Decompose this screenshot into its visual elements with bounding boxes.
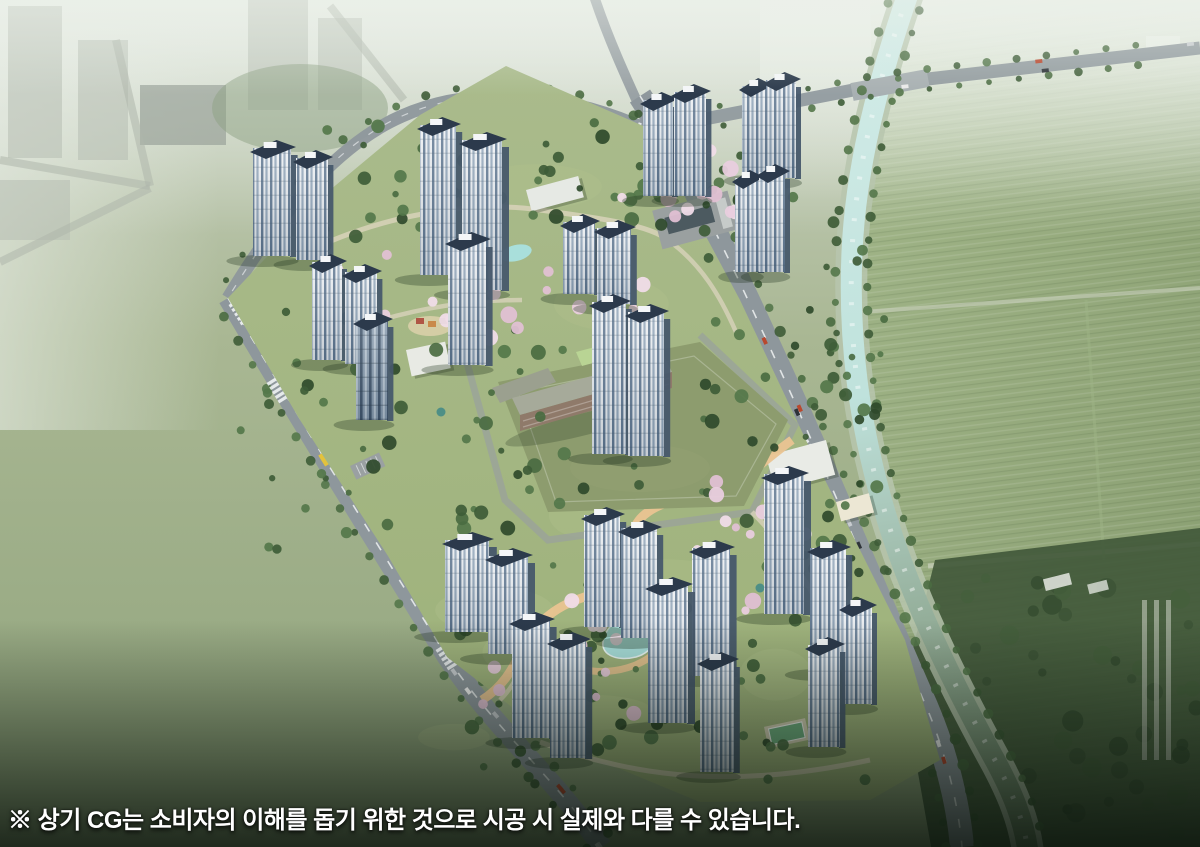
- rooftop-structure: [320, 256, 330, 262]
- cherry-blossom-tree: [382, 250, 392, 260]
- rooftop-structure: [602, 296, 614, 302]
- rooftop-structure: [354, 266, 365, 272]
- rooftop-structure: [659, 579, 673, 585]
- cherry-blossom-tree: [543, 266, 554, 277]
- rooftop-structure: [631, 522, 643, 528]
- rooftop-structure: [430, 119, 442, 125]
- cherry-blossom-tree: [722, 161, 738, 177]
- cherry-blossom-tree: [564, 593, 579, 608]
- cherry-blossom-tree: [709, 487, 724, 502]
- rooftop-structure: [607, 222, 619, 228]
- caption-disclaimer: ※ 상기 CG는 소비자의 이해를 돕기 위한 것으로 시공 시 실제와 다를 …: [8, 800, 800, 835]
- rooftop-structure: [572, 216, 583, 222]
- aerial-render-stage: ※ 상기 CG는 소비자의 이해를 돕기 위한 것으로 시공 시 실제와 다를 …: [0, 0, 1200, 847]
- cherry-blossom-tree: [500, 306, 517, 323]
- rooftop-structure: [820, 542, 832, 548]
- cherry-blossom-tree: [746, 530, 755, 539]
- pavilion: [437, 408, 446, 417]
- rooftop-structure: [264, 142, 277, 148]
- rooftop-structure: [457, 534, 472, 540]
- rooftop-structure: [850, 600, 860, 606]
- cherry-blossom-tree: [543, 286, 551, 294]
- rooftop-structure: [305, 152, 316, 158]
- rooftop-structure: [594, 509, 606, 515]
- cherry-blossom-tree: [428, 297, 438, 307]
- cherry-blossom-tree: [732, 523, 740, 531]
- rooftop-structure: [365, 314, 376, 320]
- rooftop-structure: [703, 542, 716, 548]
- aerial-render: [0, 0, 1200, 847]
- rooftop-structure: [499, 550, 513, 556]
- cherry-blossom-tree: [511, 321, 524, 334]
- rooftop-structure: [523, 614, 536, 620]
- cherry-blossom-tree: [635, 277, 650, 292]
- cherry-blossom-tree: [745, 593, 761, 609]
- cherry-blossom-tree: [710, 475, 723, 488]
- rooftop-structure: [742, 172, 750, 178]
- pavilion: [756, 584, 765, 593]
- rooftop-structure: [473, 134, 487, 140]
- rooftop-structure: [766, 166, 775, 172]
- rooftop-structure: [459, 234, 472, 240]
- cherry-blossom-tree: [669, 210, 681, 222]
- cherry-blossom-tree: [720, 515, 732, 527]
- rooftop-structure: [638, 306, 650, 312]
- rooftop-structure: [775, 468, 789, 474]
